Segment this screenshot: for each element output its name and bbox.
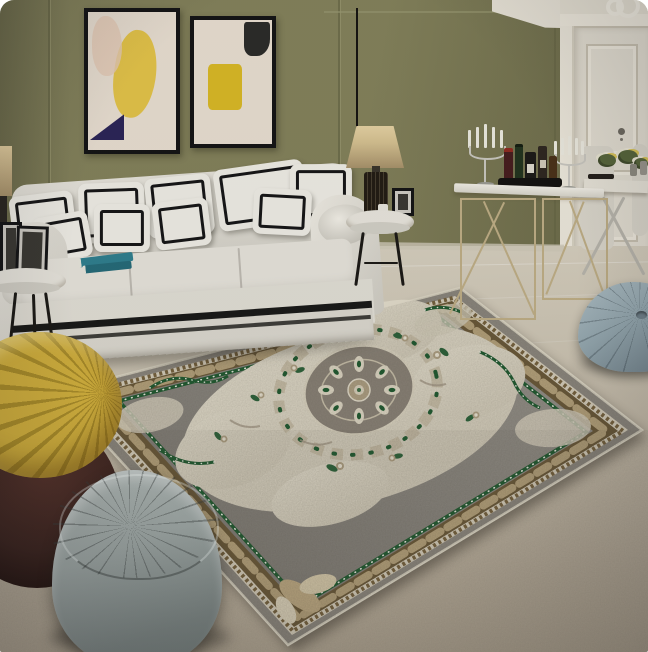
sofa-pillow <box>94 204 150 252</box>
candelabra-stem <box>568 164 570 188</box>
artwork-right-canvas <box>194 20 272 144</box>
sofa-pillow <box>252 187 312 236</box>
pouf-button <box>636 311 647 319</box>
candle <box>492 127 495 148</box>
candle <box>568 136 571 155</box>
candelabra-stem <box>484 158 486 184</box>
table-edge <box>350 222 410 234</box>
artwork-left-frame <box>84 8 180 154</box>
bottle-label <box>540 160 546 168</box>
candle <box>561 138 564 155</box>
art-black-shape <box>244 22 270 56</box>
side-table-right <box>344 0 420 300</box>
console-table <box>452 120 608 322</box>
art-yellow-shape <box>208 64 242 110</box>
page <box>0 0 648 652</box>
silver-goblet <box>630 164 637 176</box>
gray-pouf <box>52 470 222 652</box>
sofa-pillow <box>151 197 212 251</box>
candle <box>581 141 584 155</box>
art-beige-shape <box>92 16 122 76</box>
art-navy-shape <box>90 108 124 140</box>
candle <box>554 141 557 155</box>
candle <box>575 138 578 155</box>
photo <box>395 191 411 213</box>
artwork-right-frame <box>190 16 276 148</box>
product-photo[interactable] <box>0 0 648 652</box>
bottle-label <box>527 164 534 173</box>
candle <box>484 124 487 148</box>
candelabra-arms <box>555 154 586 166</box>
table-stretcher <box>364 262 398 264</box>
candle <box>476 127 479 148</box>
candelabra-arms <box>469 146 506 160</box>
artwork-left-canvas <box>88 12 176 150</box>
silver-goblet <box>640 161 647 175</box>
table-leg <box>354 232 364 286</box>
table-leg <box>394 232 404 286</box>
table-edge <box>0 282 60 294</box>
lamp-shade <box>346 126 404 168</box>
